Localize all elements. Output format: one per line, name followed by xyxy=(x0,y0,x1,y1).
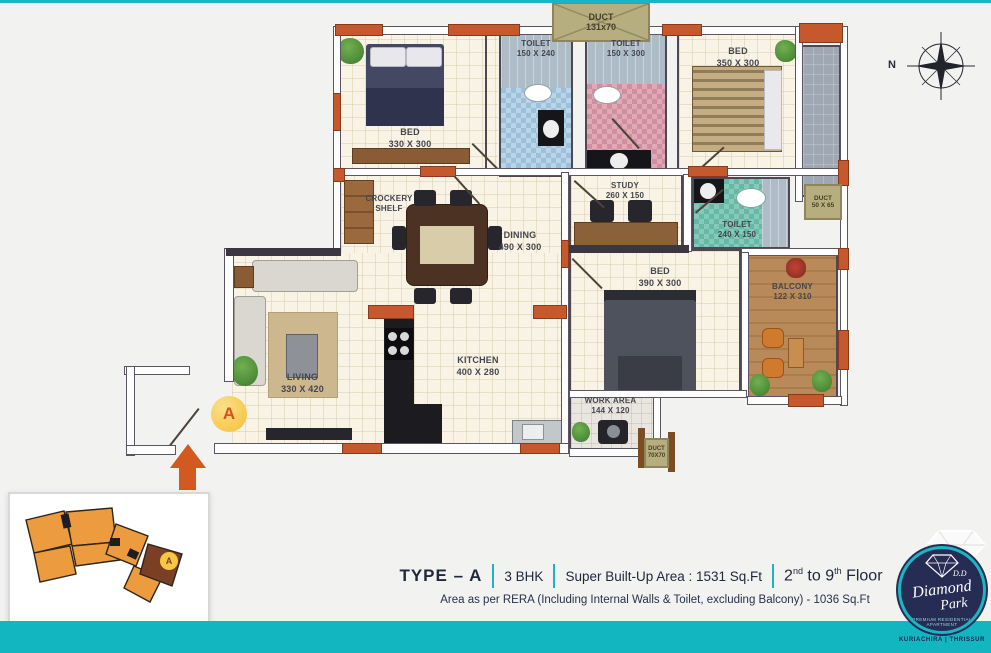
room-dims: 330 X 420 xyxy=(245,384,360,396)
logo-dd: D.D xyxy=(953,569,967,578)
logo-tagline: PREMIUM RESIDENTIAL APARTMENT xyxy=(901,617,983,627)
room-name: STUDY xyxy=(570,181,680,191)
unit-marker-letter: A xyxy=(223,404,235,424)
key-plan-unit-letter: A xyxy=(166,556,173,566)
wall-accent xyxy=(520,443,560,454)
wall-accent xyxy=(333,93,341,131)
room-label-bed1: BED 330 X 300 xyxy=(350,127,470,150)
duct-right: DUCT 50 X 65 xyxy=(804,184,842,220)
separator xyxy=(772,564,774,588)
floor-ordinal: th xyxy=(834,566,842,576)
wall xyxy=(333,168,847,176)
balcony-chair-icon xyxy=(762,328,784,348)
rera-area-label: Area as per RERA (Including Internal Wal… xyxy=(420,594,890,606)
plan-summary: TYPE – A 3 BHK Super Built-Up Area : 153… xyxy=(398,564,884,588)
duct-post-icon xyxy=(668,432,675,472)
wall-living-top xyxy=(226,248,341,256)
burner-icon xyxy=(388,346,397,355)
chair-icon xyxy=(392,226,406,250)
top-teal-border xyxy=(0,0,991,3)
room-label-dining: DINING 490 X 300 xyxy=(455,230,585,253)
wall xyxy=(126,445,176,455)
floor-end: Floor xyxy=(842,568,883,585)
wall xyxy=(214,443,569,454)
logo-location: KURIACHIRA | THRISSUR xyxy=(888,637,991,643)
side-table-icon xyxy=(234,266,254,288)
builtup-area-label: Super Built-Up Area : 1531 Sq.Ft xyxy=(565,569,762,584)
room-dims: 490 X 300 xyxy=(455,242,585,254)
wall xyxy=(683,174,692,252)
balcony-table-icon xyxy=(788,338,804,368)
room-dims: 350 X 300 xyxy=(677,58,799,70)
room-label-toilet3: TOILET 240 X 150 xyxy=(692,220,782,241)
chair-icon xyxy=(590,200,614,222)
diamond-park-logo: D.D Diamond Park PREMIUM RESIDENTIAL APA… xyxy=(898,546,986,634)
separator xyxy=(553,564,555,588)
key-plan-unit-marker: A xyxy=(160,552,178,570)
room-name: BALCONY xyxy=(750,282,835,292)
kitchen-counter-icon xyxy=(384,404,442,445)
room-name: CROCKERY xyxy=(352,194,426,204)
room-label-work-area: WORK AREA 144 X 120 xyxy=(563,396,658,417)
duct-dims: 50 X 65 xyxy=(812,202,834,209)
room-name: LIVING xyxy=(245,372,360,384)
wall xyxy=(741,252,749,398)
wall-accent xyxy=(420,166,456,177)
room-name: WORK AREA xyxy=(563,396,658,406)
wall-accent xyxy=(335,24,383,36)
room-dims: 240 X 150 xyxy=(692,230,782,240)
plant-icon xyxy=(812,370,832,392)
burner-icon xyxy=(400,346,409,355)
entry-arrow-icon xyxy=(170,444,206,468)
pillow-icon xyxy=(406,47,442,67)
duct-label: DUCT xyxy=(648,446,665,453)
room-label-toilet1: TOILET 150 X 240 xyxy=(499,39,573,60)
wall-accent xyxy=(333,168,345,182)
wall-accent xyxy=(838,248,849,270)
wall-accent xyxy=(342,443,382,454)
wall xyxy=(126,366,135,456)
chair-icon xyxy=(628,200,652,222)
room-dims: 150 X 240 xyxy=(499,49,573,59)
room-name: BED xyxy=(677,46,799,58)
entry-arrow-stem xyxy=(179,468,196,490)
duct-top: DUCT 131x70 xyxy=(552,2,650,42)
room-label-study: STUDY 260 X 150 xyxy=(570,181,680,202)
chair-icon xyxy=(450,288,472,304)
room-label-kitchen: KITCHEN 400 X 280 xyxy=(420,355,536,378)
blanket-icon xyxy=(366,88,444,126)
washing-machine-door-icon xyxy=(607,425,620,438)
room-dims: 260 X 150 xyxy=(570,191,680,201)
wall-accent xyxy=(368,305,414,319)
floor-range-label: 2nd to 9th Floor xyxy=(784,566,882,585)
plant-icon xyxy=(572,422,590,442)
room-dims: 122 X 310 xyxy=(750,292,835,302)
wall-accent xyxy=(788,394,824,407)
room-name: TOILET xyxy=(585,39,667,49)
wall-accent xyxy=(533,305,567,319)
wall-accent xyxy=(838,330,849,370)
pillow-icon xyxy=(370,47,406,67)
room-name: TOILET xyxy=(499,39,573,49)
room-dims: 400 X 280 xyxy=(420,367,536,379)
wall-accent xyxy=(662,24,702,36)
floor-mid: to 9 xyxy=(803,568,834,585)
wall xyxy=(224,248,234,382)
room-name: BED xyxy=(600,266,720,278)
pillow-icon xyxy=(764,70,782,150)
duct-dims: 131x70 xyxy=(586,22,616,32)
wall-accent xyxy=(448,24,520,36)
compass-icon xyxy=(905,30,977,102)
room-label-living: LIVING 330 X 420 xyxy=(245,372,360,395)
washbasin-icon xyxy=(610,153,628,169)
room-label-bed2: BED 350 X 300 xyxy=(677,46,799,69)
wall xyxy=(741,248,842,256)
floor-num: 2 xyxy=(784,568,793,585)
room-label-balcony: BALCONY 122 X 310 xyxy=(750,282,835,303)
separator xyxy=(492,564,494,588)
room-name: KITCHEN xyxy=(420,355,536,367)
type-label: TYPE – A xyxy=(399,566,482,586)
floorplan-page: DUCT 131x70 DUCT 50 X 65 DUCT 70X70 BED … xyxy=(0,0,991,653)
burner-icon xyxy=(400,332,409,341)
room-dims: 150 X 300 xyxy=(585,49,667,59)
unit-marker: A xyxy=(211,396,247,432)
wall-accent xyxy=(799,23,843,43)
sink-bowl-icon xyxy=(522,424,544,440)
plant-icon xyxy=(338,38,364,64)
duct-bottom: DUCT 70X70 xyxy=(644,438,669,468)
key-plan: A xyxy=(8,492,210,624)
wall-accent xyxy=(838,160,849,186)
wall-bed3-top xyxy=(569,245,689,253)
bottom-teal-bar xyxy=(0,621,991,653)
compass-north-label: N xyxy=(888,59,896,71)
flower-icon xyxy=(786,258,806,278)
duct-label: DUCT xyxy=(814,195,832,202)
washbasin-icon xyxy=(543,120,559,138)
burner-icon xyxy=(388,332,397,341)
room-label-toilet2: TOILET 150 X 300 xyxy=(585,39,667,60)
wall xyxy=(333,26,341,256)
wall-accent xyxy=(688,166,728,177)
toilet-wc-icon xyxy=(524,84,552,102)
tv-unit-icon xyxy=(266,428,352,440)
duct-label: DUCT xyxy=(589,12,614,22)
floor-ordinal: nd xyxy=(793,566,803,576)
room-dims: 144 X 120 xyxy=(563,406,658,416)
toilet-wc-icon xyxy=(736,188,766,208)
room-name: TOILET xyxy=(692,220,782,230)
room-label-crockery: CROCKERY SHELF xyxy=(352,194,426,215)
sofa-icon xyxy=(252,260,358,292)
dresser-icon xyxy=(352,148,470,164)
room-name: SHELF xyxy=(352,204,426,214)
bhk-label: 3 BHK xyxy=(504,569,543,584)
duct-dims: 70X70 xyxy=(648,453,665,460)
room-name: DINING xyxy=(455,230,585,242)
room-name: BED xyxy=(350,127,470,139)
room-label-bed3: BED 390 X 300 xyxy=(600,266,720,289)
room-dims: 330 X 300 xyxy=(350,139,470,151)
plant-icon xyxy=(750,374,770,396)
toilet-wc-icon xyxy=(593,86,621,104)
chair-icon xyxy=(414,288,436,304)
room-dims: 390 X 300 xyxy=(600,278,720,290)
